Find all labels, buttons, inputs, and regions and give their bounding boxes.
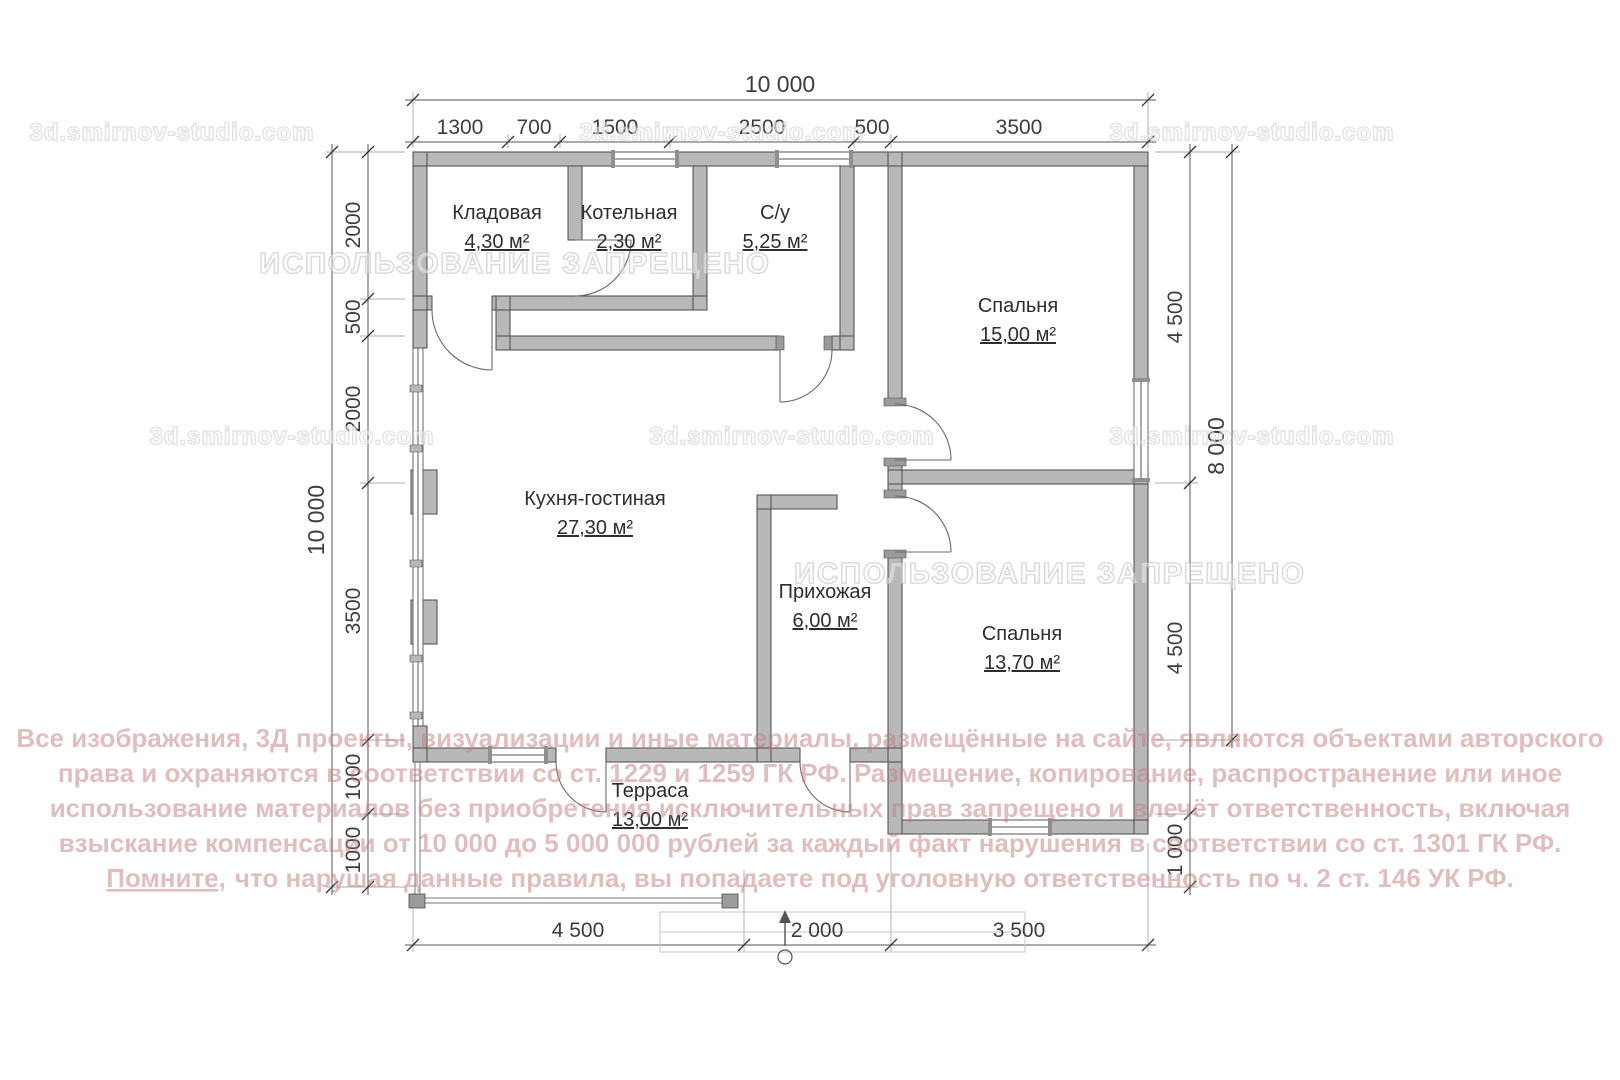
watermark-site-3: 3d.smirnov-studio.com: [1109, 119, 1394, 146]
dim-top-seg-1: 1300: [437, 116, 484, 139]
watermark-site-2: 3d.smirnov-studio.com: [579, 119, 864, 146]
watermark-site-4: 3d.smirnov-studio.com: [149, 423, 434, 450]
room-name-kitchen-living: Кухня-гостиная: [524, 488, 666, 510]
room-name-bedroom-2: Спальня: [982, 623, 1062, 645]
watermark-prohibited-1: ИСПОЛЬЗОВАНИЕ ЗАПРЕЩЕНО: [259, 248, 771, 280]
dim-bottom-seg-1: 4 500: [552, 919, 605, 942]
room-name-bedroom-1: Спальня: [978, 295, 1058, 317]
watermark-site-6: 3d.smirnov-studio.com: [1109, 423, 1394, 450]
room-name-bathroom: С/у: [760, 202, 790, 224]
dim-right-seg-2: 4 500: [1164, 622, 1187, 675]
watermark-prohibited-2: ИСПОЛЬЗОВАНИЕ ЗАПРЕЩЕНО: [794, 558, 1306, 590]
room-name-boiler: Котельная: [581, 202, 678, 224]
dim-top-seg-6: 3500: [996, 116, 1043, 139]
copyright-line-5-rest: что нарушая данные правила, вы попадаете…: [235, 863, 1514, 893]
terrace-posts: [409, 894, 738, 908]
copyright-line-5-underlined: Помните,: [106, 863, 226, 893]
room-name-storage: Кладовая: [452, 202, 542, 224]
watermark-site-1: 3d.smirnov-studio.com: [29, 119, 314, 146]
copyright-watermark: Все изображения, 3Д проекты, визуализаци…: [16, 723, 1603, 893]
copyright-line-2: права и охраняются в соответствии со ст.…: [58, 758, 1562, 788]
dim-left-total: 10 000: [303, 485, 329, 555]
room-area-hallway: 6,00 м²: [793, 610, 858, 632]
dim-top-total: 10 000: [745, 71, 815, 97]
dim-top-seg-2: 700: [516, 116, 551, 139]
dim-bottom-seg-2: 2 000: [791, 919, 844, 942]
copyright-line-1: Все изображения, 3Д проекты, визуализаци…: [16, 723, 1603, 753]
dim-left-seg-2: 500: [342, 299, 365, 334]
room-area-bedroom-1: 15,00 м²: [980, 324, 1056, 346]
room-area-bedroom-2: 13,70 м²: [984, 652, 1060, 674]
copyright-line-4: взыскание компенсации от 10 000 до 5 000…: [59, 828, 1562, 858]
room-area-kitchen-living: 27,30 м²: [557, 517, 633, 539]
dim-left-seg-1: 2000: [342, 202, 365, 249]
floor-plan-page: 10 000 1300 700 1500 2500 500 3500 10 00…: [0, 0, 1620, 1080]
dim-bottom-seg-3: 3 500: [993, 919, 1046, 942]
dim-left-seg-4: 3500: [342, 588, 365, 635]
dim-right-seg-1: 4 500: [1164, 291, 1187, 344]
copyright-line-5: Помните,что нарушая данные правила, вы п…: [106, 863, 1513, 893]
copyright-line-3: использование материалов без приобретени…: [50, 793, 1571, 823]
watermark-site-5: 3d.smirnov-studio.com: [649, 423, 934, 450]
floor-plan-canvas: 10 000 1300 700 1500 2500 500 3500 10 00…: [0, 0, 1620, 1080]
